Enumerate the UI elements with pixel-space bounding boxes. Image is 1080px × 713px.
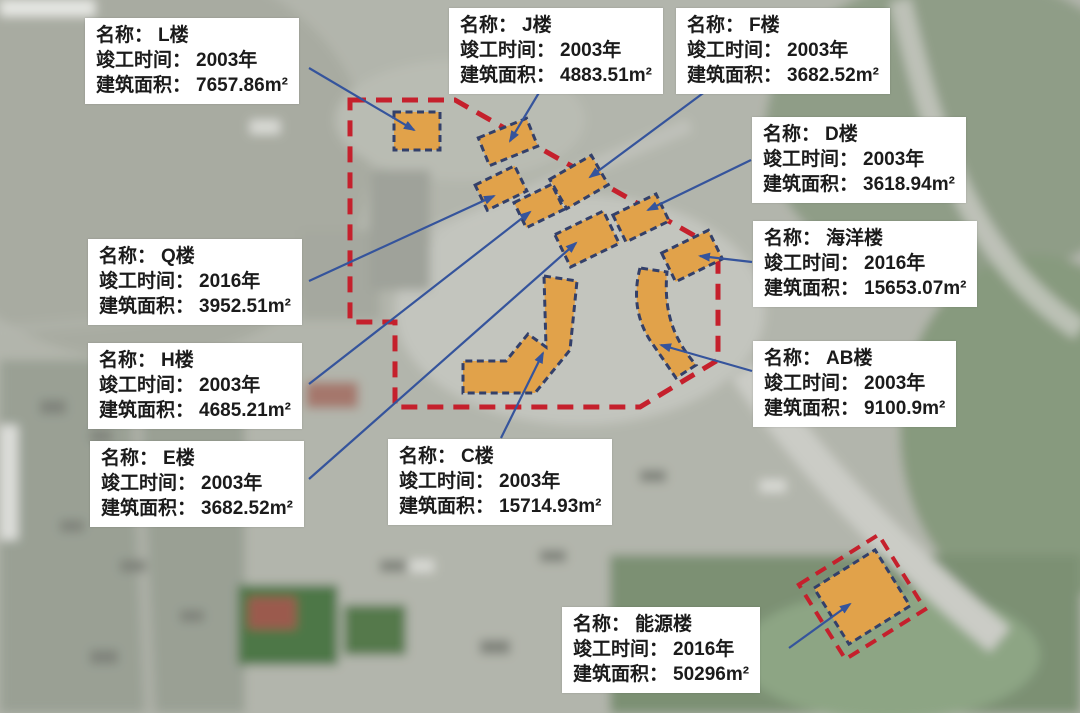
- year-label: 竣工时间：: [764, 253, 859, 274]
- year-value: 2003年: [199, 375, 260, 396]
- year-line: 竣工时间：2003年: [460, 38, 652, 63]
- annotated-satellite-map: 名称：L楼 竣工时间：2003年 建筑面积：7657.86m² 名称：J楼 竣工…: [0, 0, 1080, 713]
- area-label: 建筑面积：: [687, 65, 782, 86]
- name-line: 名称：C楼: [399, 444, 601, 469]
- year-label: 竣工时间：: [96, 50, 191, 71]
- area-label: 建筑面积：: [764, 278, 859, 299]
- name-line: 名称：D楼: [763, 122, 955, 147]
- area-value: 50296m²: [673, 664, 749, 685]
- name-line: 名称：F楼: [687, 13, 879, 38]
- area-line: 建筑面积：15714.93m²: [399, 494, 601, 519]
- name-label: 名称：: [763, 124, 820, 145]
- area-line: 建筑面积：3682.52m²: [101, 496, 293, 521]
- year-line: 竣工时间：2003年: [763, 147, 955, 172]
- year-label: 竣工时间：: [687, 40, 782, 61]
- year-label: 竣工时间：: [399, 471, 494, 492]
- name-label: 名称：: [99, 350, 156, 371]
- name-label: 名称：: [764, 348, 821, 369]
- year-value: 2016年: [673, 639, 734, 660]
- year-line: 竣工时间：2003年: [101, 471, 293, 496]
- building-name-value: E楼: [163, 448, 195, 469]
- area-value: 9100.9m²: [864, 398, 945, 419]
- building-name-value: AB楼: [826, 348, 872, 369]
- name-label: 名称：: [399, 446, 456, 467]
- name-line: 名称：H楼: [99, 348, 291, 373]
- area-value: 3952.51m²: [199, 296, 291, 317]
- building-name-value: C楼: [461, 446, 494, 467]
- name-line: 名称：AB楼: [764, 346, 945, 371]
- name-label: 名称：: [573, 614, 630, 635]
- area-label: 建筑面积：: [573, 664, 668, 685]
- area-line: 建筑面积：3618.94m²: [763, 172, 955, 197]
- building-name-value: F楼: [749, 15, 780, 36]
- callout-building-j: 名称：J楼 竣工时间：2003年 建筑面积：4883.51m²: [449, 8, 663, 94]
- year-label: 竣工时间：: [99, 375, 194, 396]
- year-line: 竣工时间：2003年: [687, 38, 879, 63]
- area-line: 建筑面积：4685.21m²: [99, 398, 291, 423]
- building-name-value: 海洋楼: [826, 228, 883, 249]
- area-line: 建筑面积：9100.9m²: [764, 396, 945, 421]
- area-label: 建筑面积：: [99, 296, 194, 317]
- area-value: 3682.52m²: [201, 498, 293, 519]
- year-label: 竣工时间：: [99, 271, 194, 292]
- year-value: 2003年: [196, 50, 257, 71]
- building-name-value: D楼: [825, 124, 858, 145]
- callout-building-f: 名称：F楼 竣工时间：2003年 建筑面积：3682.52m²: [676, 8, 890, 94]
- name-line: 名称：J楼: [460, 13, 652, 38]
- area-value: 4883.51m²: [560, 65, 652, 86]
- building-name-value: 能源楼: [635, 614, 692, 635]
- year-line: 竣工时间：2016年: [99, 269, 291, 294]
- callout-building-h: 名称：H楼 竣工时间：2003年 建筑面积：4685.21m²: [88, 343, 302, 429]
- callout-building-d: 名称：D楼 竣工时间：2003年 建筑面积：3618.94m²: [752, 117, 966, 203]
- callout-building-ocean: 名称：海洋楼 竣工时间：2016年 建筑面积：15653.07m²: [753, 221, 977, 307]
- year-label: 竣工时间：: [460, 40, 555, 61]
- year-label: 竣工时间：: [764, 373, 859, 394]
- area-label: 建筑面积：: [99, 400, 194, 421]
- year-line: 竣工时间：2003年: [96, 48, 288, 73]
- building-name-value: L楼: [158, 25, 189, 46]
- year-value: 2016年: [199, 271, 260, 292]
- area-value: 15714.93m²: [499, 496, 601, 517]
- year-label: 竣工时间：: [573, 639, 668, 660]
- year-line: 竣工时间：2003年: [99, 373, 291, 398]
- area-line: 建筑面积：15653.07m²: [764, 276, 966, 301]
- name-line: 名称：能源楼: [573, 612, 749, 637]
- callout-building-c: 名称：C楼 竣工时间：2003年 建筑面积：15714.93m²: [388, 439, 612, 525]
- area-value: 15653.07m²: [864, 278, 966, 299]
- building-name-value: Q楼: [161, 246, 195, 267]
- name-line: 名称：Q楼: [99, 244, 291, 269]
- year-line: 竣工时间：2016年: [764, 251, 966, 276]
- year-value: 2016年: [864, 253, 925, 274]
- year-value: 2003年: [560, 40, 621, 61]
- callout-building-energy: 名称：能源楼 竣工时间：2016年 建筑面积：50296m²: [562, 607, 760, 693]
- name-label: 名称：: [101, 448, 158, 469]
- area-line: 建筑面积：3952.51m²: [99, 294, 291, 319]
- year-value: 2003年: [863, 149, 924, 170]
- area-line: 建筑面积：50296m²: [573, 662, 749, 687]
- name-line: 名称：E楼: [101, 446, 293, 471]
- year-line: 竣工时间：2016年: [573, 637, 749, 662]
- year-value: 2003年: [499, 471, 560, 492]
- year-value: 2003年: [864, 373, 925, 394]
- building-l-footprint: [394, 112, 440, 150]
- name-label: 名称：: [99, 246, 156, 267]
- callout-building-q: 名称：Q楼 竣工时间：2016年 建筑面积：3952.51m²: [88, 239, 302, 325]
- year-value: 2003年: [787, 40, 848, 61]
- area-line: 建筑面积：4883.51m²: [460, 63, 652, 88]
- area-line: 建筑面积：3682.52m²: [687, 63, 879, 88]
- year-label: 竣工时间：: [763, 149, 858, 170]
- area-value: 3682.52m²: [787, 65, 879, 86]
- name-label: 名称：: [460, 15, 517, 36]
- area-value: 4685.21m²: [199, 400, 291, 421]
- name-line: 名称：海洋楼: [764, 226, 966, 251]
- callout-building-ab: 名称：AB楼 竣工时间：2003年 建筑面积：9100.9m²: [753, 341, 956, 427]
- building-name-value: J楼: [522, 15, 552, 36]
- area-label: 建筑面积：: [96, 75, 191, 96]
- name-line: 名称：L楼: [96, 23, 288, 48]
- callout-building-l: 名称：L楼 竣工时间：2003年 建筑面积：7657.86m²: [85, 18, 299, 104]
- area-value: 3618.94m²: [863, 174, 955, 195]
- year-line: 竣工时间：2003年: [764, 371, 945, 396]
- area-value: 7657.86m²: [196, 75, 288, 96]
- area-label: 建筑面积：: [101, 498, 196, 519]
- area-label: 建筑面积：: [399, 496, 494, 517]
- year-line: 竣工时间：2003年: [399, 469, 601, 494]
- callout-building-e: 名称：E楼 竣工时间：2003年 建筑面积：3682.52m²: [90, 441, 304, 527]
- area-line: 建筑面积：7657.86m²: [96, 73, 288, 98]
- name-label: 名称：: [96, 25, 153, 46]
- name-label: 名称：: [687, 15, 744, 36]
- name-label: 名称：: [764, 228, 821, 249]
- building-name-value: H楼: [161, 350, 194, 371]
- area-label: 建筑面积：: [460, 65, 555, 86]
- year-label: 竣工时间：: [101, 473, 196, 494]
- area-label: 建筑面积：: [764, 398, 859, 419]
- year-value: 2003年: [201, 473, 262, 494]
- area-label: 建筑面积：: [763, 174, 858, 195]
